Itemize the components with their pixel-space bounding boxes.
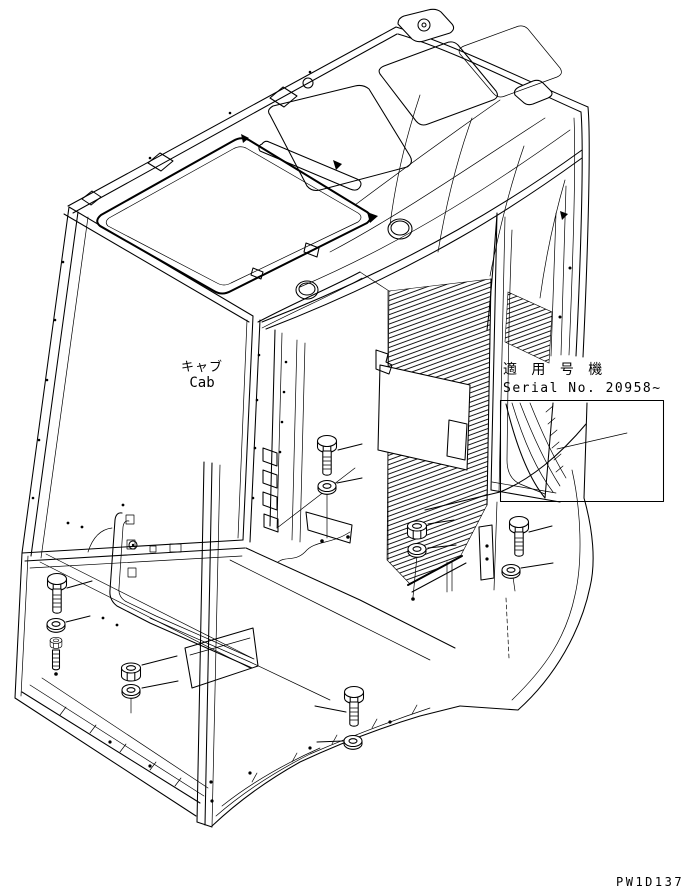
flat-washer-icon xyxy=(344,736,362,750)
leader-line xyxy=(338,444,362,450)
flat-washer-icon xyxy=(318,481,336,495)
door-area xyxy=(15,462,350,827)
hex-bolt-icon xyxy=(345,687,364,727)
flat-washer-icon xyxy=(408,544,426,558)
leader-line xyxy=(66,616,90,622)
leader-line xyxy=(142,681,178,688)
cab-label-en: Cab xyxy=(179,375,225,391)
drawing-code: PW1D137 xyxy=(616,875,684,889)
leader-line xyxy=(142,656,177,665)
cab-label-ja: キャブ xyxy=(179,356,225,375)
leader-line xyxy=(557,433,627,449)
flat-washer-icon xyxy=(122,685,140,699)
leader-line xyxy=(521,563,553,568)
cab-line-art xyxy=(0,0,688,896)
hex-bolt-icon xyxy=(48,574,67,614)
serial-number-label: Serial No. 20958~ xyxy=(503,381,662,396)
threaded-stud-icon xyxy=(53,650,60,670)
flat-washer-icon xyxy=(47,619,65,633)
leader-line xyxy=(529,526,552,532)
leader-line xyxy=(315,706,346,712)
serial-applicability-label: 適 用 号 機 xyxy=(503,359,605,379)
hex-bolt-icon xyxy=(318,436,337,476)
hex-nut-icon xyxy=(122,663,141,681)
hex-nut-icon xyxy=(408,521,427,539)
hex-bolt-icon xyxy=(510,517,529,557)
flat-washer-icon xyxy=(502,565,520,579)
small-nut-icon xyxy=(50,637,62,648)
interior-rear-wall xyxy=(258,215,497,584)
cab-parts-diagram: キャブ Cab 適 用 号 機 Serial No. 20958~ PW1D13… xyxy=(0,0,688,896)
